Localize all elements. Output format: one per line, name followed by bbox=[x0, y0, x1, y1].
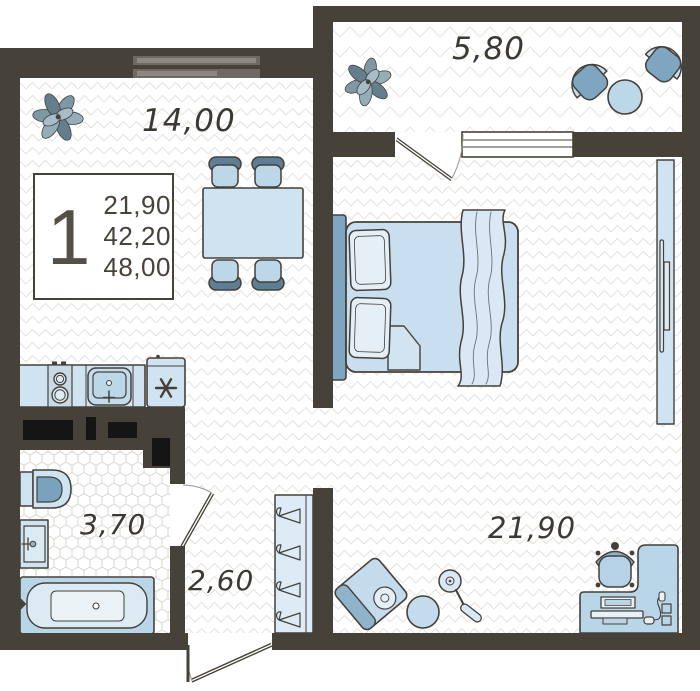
wall-bottom-left bbox=[0, 633, 188, 650]
tv-unit bbox=[657, 160, 674, 424]
monitor-icon bbox=[601, 597, 635, 608]
area-value-2: 42,20 bbox=[103, 221, 171, 252]
passage-floor bbox=[185, 407, 313, 450]
bathtub-icon bbox=[14, 577, 154, 634]
bed-headboard bbox=[331, 215, 346, 380]
balcony-area-label: 5,80 bbox=[452, 31, 525, 67]
entrance-door bbox=[187, 633, 273, 682]
washbasin-icon bbox=[20, 520, 48, 568]
balcony-table bbox=[608, 80, 642, 114]
ottoman bbox=[407, 596, 439, 628]
wall-bathroom-right-upper bbox=[170, 468, 185, 484]
room-count: 1 bbox=[47, 198, 90, 276]
unit-info-card: 1 21,90 42,20 48,00 bbox=[33, 173, 174, 300]
apartment-floor-plan: 14,00 5,80 21,90 3,70 2,60 1 21,90 42,20… bbox=[0, 0, 700, 691]
dining-table bbox=[203, 188, 303, 258]
wardrobe bbox=[275, 495, 313, 633]
curtain bbox=[458, 210, 505, 386]
kitchen-sink-icon bbox=[88, 368, 131, 405]
toilet-icon bbox=[20, 470, 71, 508]
wall-right bbox=[682, 6, 700, 650]
bed-pillow bbox=[349, 297, 391, 358]
floor-plan-drawing bbox=[0, 0, 700, 691]
bed-pillow bbox=[349, 229, 391, 290]
unit-areas: 21,90 42,20 48,00 bbox=[103, 190, 171, 284]
kitchen-counter bbox=[17, 362, 145, 408]
area-value-3: 48,00 bbox=[103, 252, 171, 283]
wall-top-balcony bbox=[313, 6, 700, 22]
bathroom-area-label: 3,70 bbox=[80, 508, 146, 541]
wall-left bbox=[0, 48, 20, 650]
bedroom-area-label: 21,90 bbox=[488, 511, 576, 545]
wall-bottom-right bbox=[272, 633, 682, 650]
bedroom-doorway-floor bbox=[313, 408, 333, 488]
stove-icon bbox=[48, 362, 72, 408]
wall-partition bbox=[313, 6, 333, 408]
wall-hallway-right bbox=[313, 488, 333, 650]
kitchen-area-label: 14,00 bbox=[142, 103, 236, 139]
wall-balcony-bottom-left bbox=[333, 132, 395, 157]
area-value-1: 21,90 bbox=[103, 190, 171, 221]
hallway-area-label: 2,60 bbox=[188, 564, 254, 597]
wall-balcony-bottom-right bbox=[573, 132, 682, 157]
fridge-icon bbox=[147, 355, 185, 407]
balcony-window bbox=[462, 132, 573, 157]
bathroom-door-threshold bbox=[170, 484, 185, 546]
